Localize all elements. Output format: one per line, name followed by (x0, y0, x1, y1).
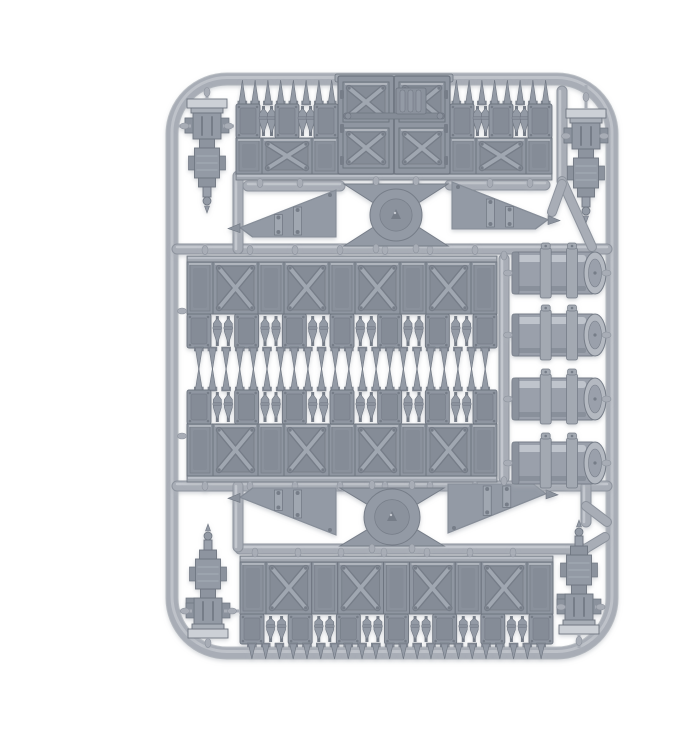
gate-lock-mechanism (396, 88, 426, 114)
sprue-product-photo (40, 16, 700, 716)
sprue-illustration (40, 16, 700, 716)
gate-double-doors (335, 74, 453, 174)
